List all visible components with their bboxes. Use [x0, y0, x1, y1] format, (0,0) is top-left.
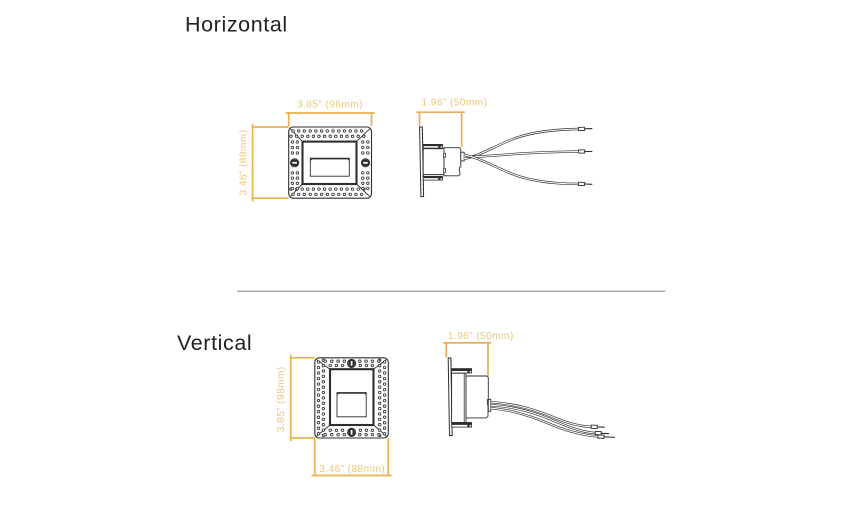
svg-text:Vertical: Vertical	[177, 331, 252, 355]
svg-text:3.46” (88mm): 3.46” (88mm)	[239, 130, 250, 196]
svg-text:3.85” (98mm): 3.85” (98mm)	[297, 99, 363, 110]
svg-text:3.46” (88mm): 3.46” (88mm)	[319, 464, 385, 475]
svg-text:1.96” (50mm): 1.96” (50mm)	[448, 331, 514, 342]
svg-text:1.96” (50mm): 1.96” (50mm)	[422, 97, 488, 108]
svg-text:3.85” (98mm): 3.85” (98mm)	[276, 366, 287, 432]
svg-text:Horizontal: Horizontal	[185, 13, 288, 37]
